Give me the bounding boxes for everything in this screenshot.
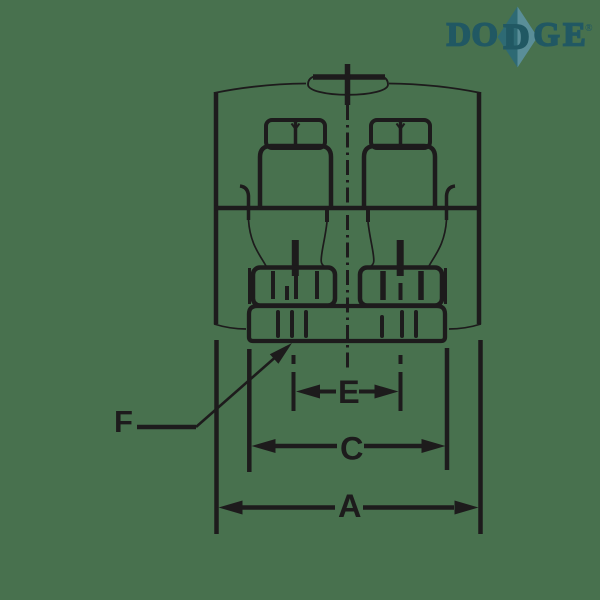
- svg-text:F: F: [114, 404, 133, 439]
- svg-text:C: C: [340, 431, 363, 467]
- svg-text:GE: GE: [534, 17, 589, 54]
- svg-text:®: ®: [585, 23, 593, 34]
- svg-text:A: A: [338, 488, 361, 524]
- svg-text:D: D: [504, 17, 530, 57]
- svg-text:E: E: [338, 374, 360, 410]
- svg-text:DO: DO: [447, 17, 499, 54]
